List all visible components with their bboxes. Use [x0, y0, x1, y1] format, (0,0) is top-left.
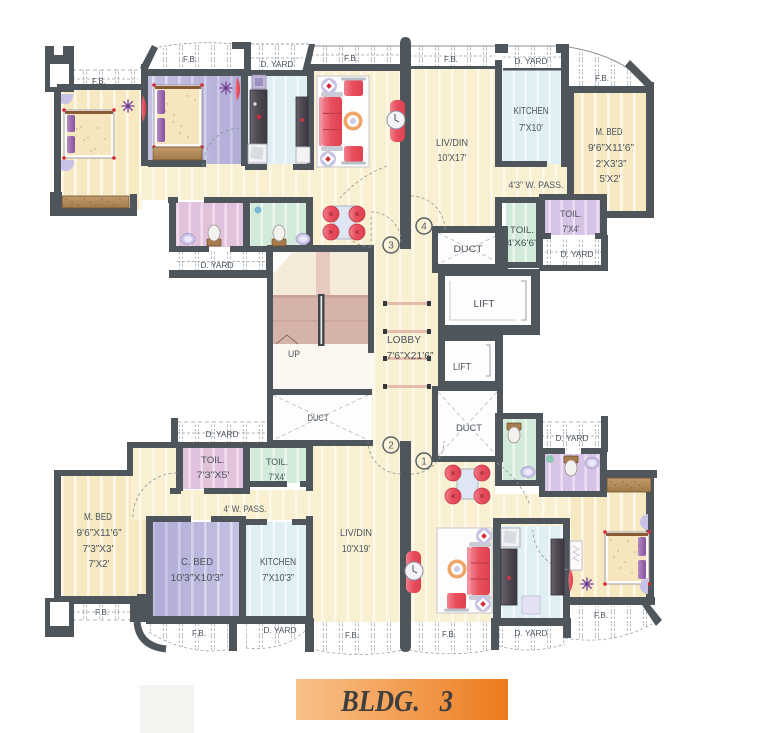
svg-text:7'X10'3”: 7'X10'3” — [262, 573, 294, 584]
svg-text:5'X2': 5'X2' — [600, 174, 621, 185]
svg-text:10'3”X10'3”: 10'3”X10'3” — [171, 573, 224, 584]
svg-text:2'X3'3”: 2'X3'3” — [596, 159, 627, 170]
svg-text:10'X17': 10'X17' — [438, 153, 467, 164]
svg-text:7'3”X5': 7'3”X5' — [197, 470, 230, 481]
svg-text:D. YARD: D. YARD — [206, 429, 239, 439]
svg-text:D. YARD: D. YARD — [264, 625, 297, 635]
svg-text:7'X4': 7'X4' — [563, 224, 580, 235]
svg-text:10'X19': 10'X19' — [342, 544, 370, 555]
svg-text:LIV/DIN: LIV/DIN — [340, 528, 372, 539]
svg-text:DUCT: DUCT — [456, 423, 482, 434]
svg-text:7'X2': 7'X2' — [89, 559, 110, 570]
svg-text:4'3” W. PASS.: 4'3” W. PASS. — [509, 180, 564, 191]
svg-text:F.B.: F.B. — [345, 631, 359, 640]
svg-text:9'6”X11'6”: 9'6”X11'6” — [77, 528, 122, 539]
svg-text:TOIL.: TOIL. — [201, 455, 225, 466]
svg-text:D. YARD: D. YARD — [515, 56, 548, 66]
svg-text:M. BED: M. BED — [84, 512, 112, 523]
svg-text:BLDG. 3: BLDG. 3 — [340, 683, 453, 718]
svg-text:D. YARD: D. YARD — [261, 59, 294, 69]
svg-text:KITCHEN: KITCHEN — [260, 557, 296, 568]
svg-text:TOIL.: TOIL. — [510, 225, 534, 236]
svg-text:TOIL.: TOIL. — [266, 457, 288, 468]
svg-text:F.B.: F.B. — [594, 611, 608, 620]
svg-text:F.B.: F.B. — [192, 629, 206, 638]
svg-text:LIFT: LIFT — [474, 299, 495, 310]
svg-text:4'X6'6”: 4'X6'6” — [507, 238, 538, 249]
svg-text:D. YARD: D. YARD — [561, 249, 594, 259]
svg-text:4: 4 — [421, 222, 427, 233]
svg-text:LIV/DIN: LIV/DIN — [436, 138, 468, 149]
svg-text:DUCT: DUCT — [308, 413, 329, 424]
svg-text:F.B.: F.B. — [444, 55, 458, 64]
svg-text:2: 2 — [388, 441, 394, 452]
svg-text:F.B.: F.B. — [183, 55, 197, 64]
svg-text:4' W. PASS.: 4' W. PASS. — [224, 504, 267, 515]
svg-text:LOBBY: LOBBY — [387, 335, 421, 346]
svg-text:1: 1 — [421, 457, 427, 468]
svg-text:C. BED: C. BED — [181, 557, 213, 568]
svg-text:LIFT: LIFT — [453, 362, 471, 373]
svg-text:F.B.: F.B. — [92, 77, 106, 86]
svg-text:TOIL.: TOIL. — [560, 209, 582, 220]
svg-text:F.B.: F.B. — [344, 54, 358, 63]
svg-text:7'3”X3': 7'3”X3' — [83, 544, 114, 555]
svg-text:7'X10': 7'X10' — [519, 123, 543, 134]
svg-text:UP: UP — [288, 349, 300, 360]
svg-text:D. YARD: D. YARD — [201, 260, 234, 270]
svg-text:7'6”X21'6”: 7'6”X21'6” — [387, 351, 434, 362]
svg-text:DUCT: DUCT — [454, 244, 483, 255]
svg-text:3: 3 — [388, 241, 394, 252]
svg-text:D. YARD: D. YARD — [515, 628, 548, 638]
svg-text:7'X4': 7'X4' — [269, 472, 286, 483]
svg-text:9'6”X11'6”: 9'6”X11'6” — [588, 143, 634, 154]
svg-text:D. YARD: D. YARD — [556, 433, 589, 443]
svg-text:F.B.: F.B. — [442, 630, 456, 639]
svg-text:M. BED: M. BED — [596, 127, 623, 138]
svg-text:F.B.: F.B. — [95, 608, 109, 617]
svg-text:F.B.: F.B. — [595, 74, 609, 83]
svg-text:KITCHEN: KITCHEN — [514, 106, 549, 117]
